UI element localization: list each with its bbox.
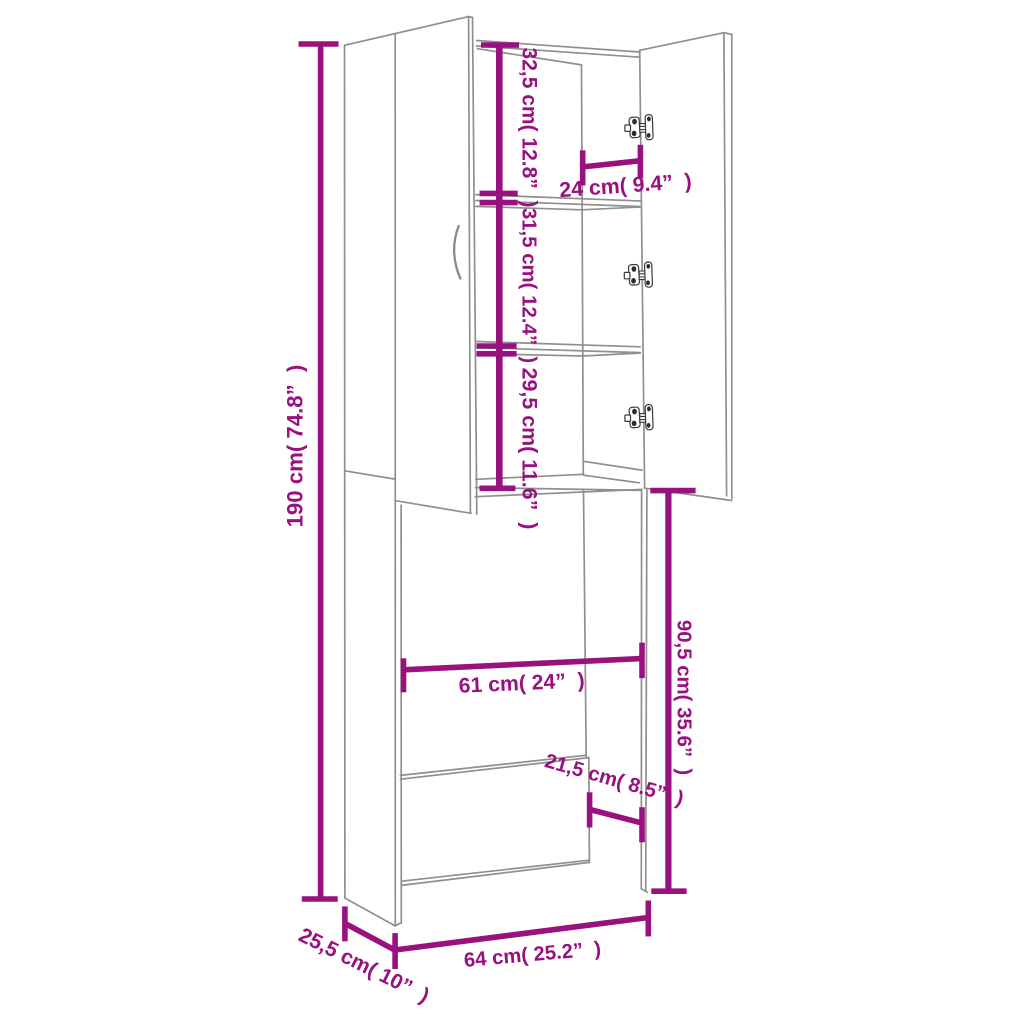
svg-text:190 cm( 74.8” ): 190 cm( 74.8” ) bbox=[283, 365, 308, 528]
svg-text:90,5 cm( 35.6” ): 90,5 cm( 35.6” ) bbox=[673, 620, 695, 775]
svg-text:31,5 cm( 12.4” ): 31,5 cm( 12.4” ) bbox=[518, 208, 540, 363]
svg-text:29,5 cm( 11.6” ): 29,5 cm( 11.6” ) bbox=[518, 368, 542, 530]
svg-text:32,5 cm( 12.8” ): 32,5 cm( 12.8” ) bbox=[518, 48, 541, 208]
